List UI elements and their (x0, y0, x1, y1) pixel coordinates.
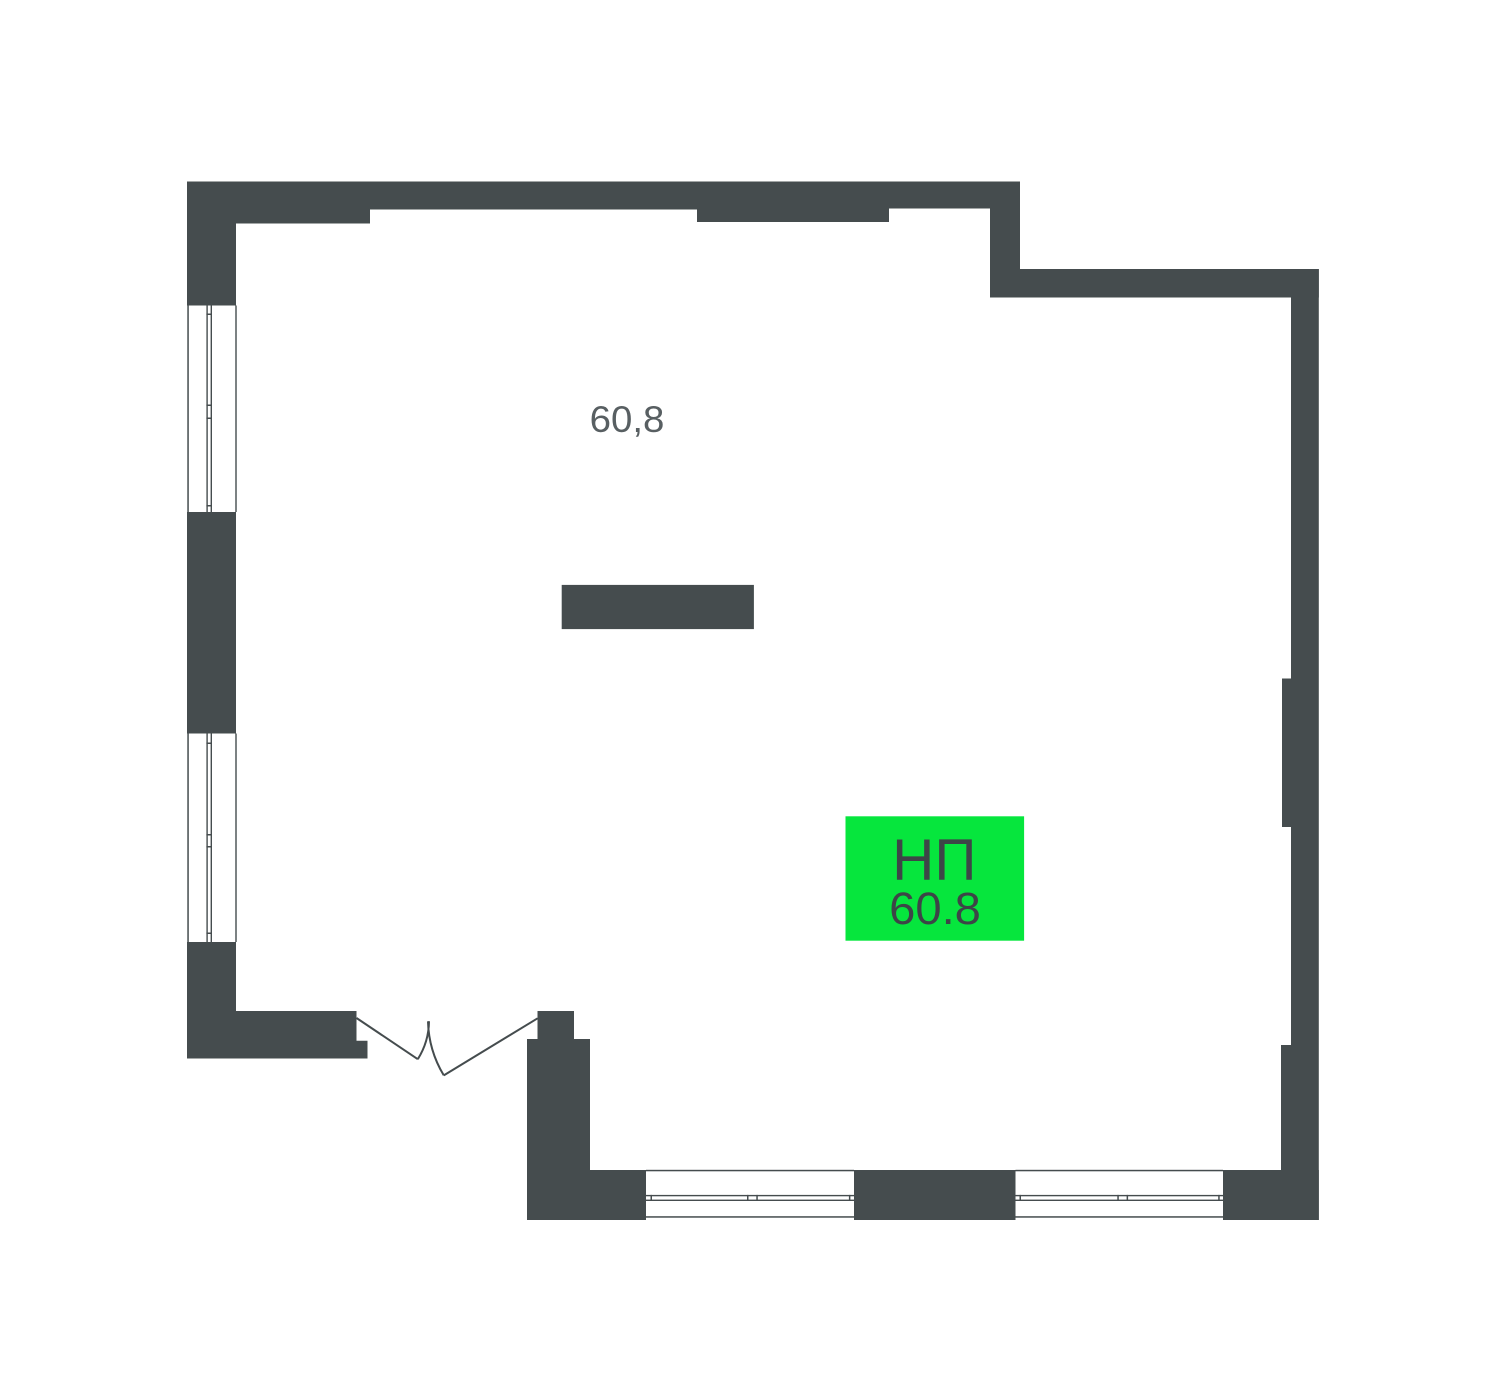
svg-text:60,8: 60,8 (590, 399, 665, 440)
svg-text:60.8: 60.8 (889, 883, 981, 934)
